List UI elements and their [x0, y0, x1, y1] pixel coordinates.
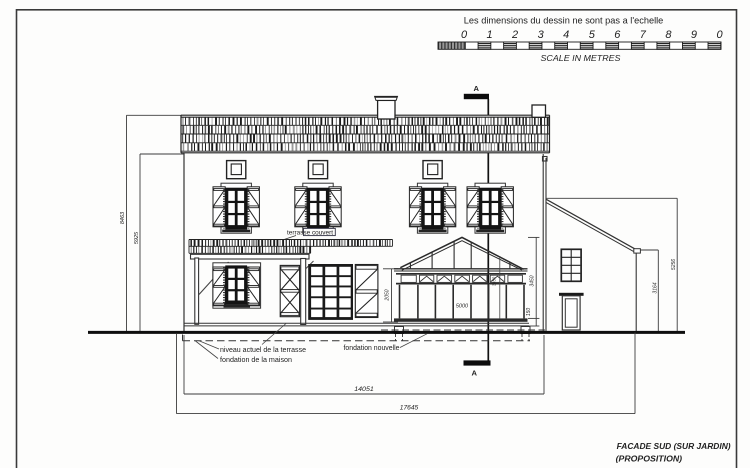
svg-text:SCALE IN METRES: SCALE IN METRES: [541, 53, 621, 63]
svg-text:5000: 5000: [456, 304, 469, 310]
svg-text:FACADE SUD (SUR JARDIN): FACADE SUD (SUR JARDIN): [617, 441, 731, 451]
svg-text:4: 4: [563, 29, 569, 41]
svg-text:0: 0: [461, 29, 468, 41]
svg-text:3450: 3450: [530, 275, 536, 286]
svg-text:3: 3: [538, 29, 545, 41]
svg-text:A: A: [474, 84, 480, 93]
svg-text:5925: 5925: [134, 231, 140, 244]
svg-text:fondation nouvelle: fondation nouvelle: [344, 345, 400, 352]
svg-text:2050: 2050: [384, 289, 390, 301]
svg-text:8463: 8463: [120, 211, 126, 224]
svg-text:5256: 5256: [671, 259, 677, 270]
svg-text:fondation de la maison: fondation de la maison: [220, 357, 292, 364]
svg-text:Les dimensions du dessin ne so: Les dimensions du dessin ne sont pas a l…: [464, 16, 664, 26]
svg-text:7: 7: [640, 29, 647, 41]
svg-text:3450: 3450: [491, 276, 496, 286]
svg-text:150: 150: [526, 308, 532, 317]
svg-text:terrasse couvert: terrasse couvert: [287, 230, 333, 237]
svg-text:5: 5: [589, 29, 596, 41]
svg-text:3164: 3164: [652, 282, 658, 293]
svg-text:6: 6: [614, 29, 621, 41]
svg-text:14051: 14051: [354, 387, 374, 393]
svg-text:17645: 17645: [400, 406, 419, 412]
svg-text:0: 0: [716, 29, 723, 41]
svg-text:2: 2: [511, 29, 518, 41]
svg-text:(PROPOSITION): (PROPOSITION): [616, 454, 683, 464]
svg-text:1: 1: [486, 29, 492, 41]
svg-text:9: 9: [691, 29, 697, 41]
svg-text:8: 8: [665, 29, 672, 41]
svg-text:A: A: [472, 369, 478, 378]
svg-text:niveau actuel de la terrasse: niveau actuel de la terrasse: [220, 347, 306, 354]
